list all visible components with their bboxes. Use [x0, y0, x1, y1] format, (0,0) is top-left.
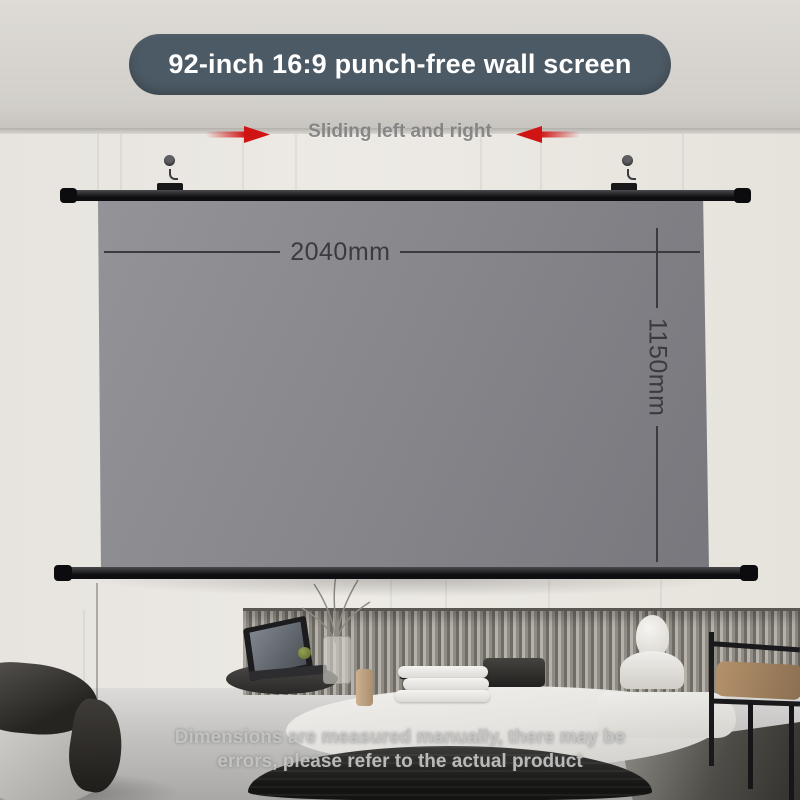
- wall-hook-icon: [164, 155, 175, 166]
- towel-stack-item: [395, 690, 490, 702]
- wall-seam: [83, 610, 85, 688]
- towel-stack-item: [398, 666, 488, 678]
- towel-stack-item: [403, 678, 489, 690]
- dimension-line: [656, 228, 658, 308]
- rail-end-cap: [60, 188, 77, 203]
- height-dimension: 1150mm: [642, 228, 672, 562]
- wall-seam: [295, 134, 297, 190]
- product-title-banner: 92-inch 16:9 punch-free wall screen: [129, 34, 671, 95]
- screen-bottom-rail: [62, 567, 746, 579]
- width-dimension-label: 2040mm: [280, 238, 400, 267]
- glass-vase: [323, 636, 351, 684]
- sliding-label: Sliding left and right: [308, 121, 492, 143]
- wall-seam: [120, 134, 122, 190]
- rail-end-cap: [54, 565, 72, 581]
- rail-end-cap: [740, 565, 758, 581]
- hook-icon: [169, 169, 178, 180]
- red-arrow-left-icon: [516, 126, 580, 143]
- wall-hook-icon: [622, 155, 633, 166]
- height-dimension-label: 1150mm: [643, 308, 672, 426]
- red-arrow-right-icon: [206, 126, 270, 143]
- width-dimension: 2040mm: [104, 237, 700, 267]
- dimension-line: [104, 251, 280, 253]
- lounge-chair-leg: [748, 703, 753, 789]
- hook-icon: [627, 169, 636, 180]
- screen-shadow: [90, 579, 720, 597]
- wall-seam: [97, 134, 99, 190]
- dimension-line: [656, 426, 658, 562]
- rail-end-cap: [734, 188, 751, 203]
- product-image: 2040mm 1150mm 92-inch 16:9 punch-free wa…: [0, 0, 800, 800]
- wall-seam: [682, 134, 684, 190]
- screen-top-rail: [70, 190, 742, 201]
- lounge-chair-cushion: [715, 661, 800, 700]
- green-fruit: [298, 647, 311, 659]
- lounge-chair-leg: [789, 706, 794, 800]
- product-title: 92-inch 16:9 punch-free wall screen: [168, 49, 631, 80]
- bust-sculpture-shoulders: [620, 651, 684, 689]
- beige-bottle: [356, 669, 373, 706]
- speaker-box: [483, 658, 545, 687]
- disclaimer-text: Dimensions are measured manually, there …: [160, 726, 640, 774]
